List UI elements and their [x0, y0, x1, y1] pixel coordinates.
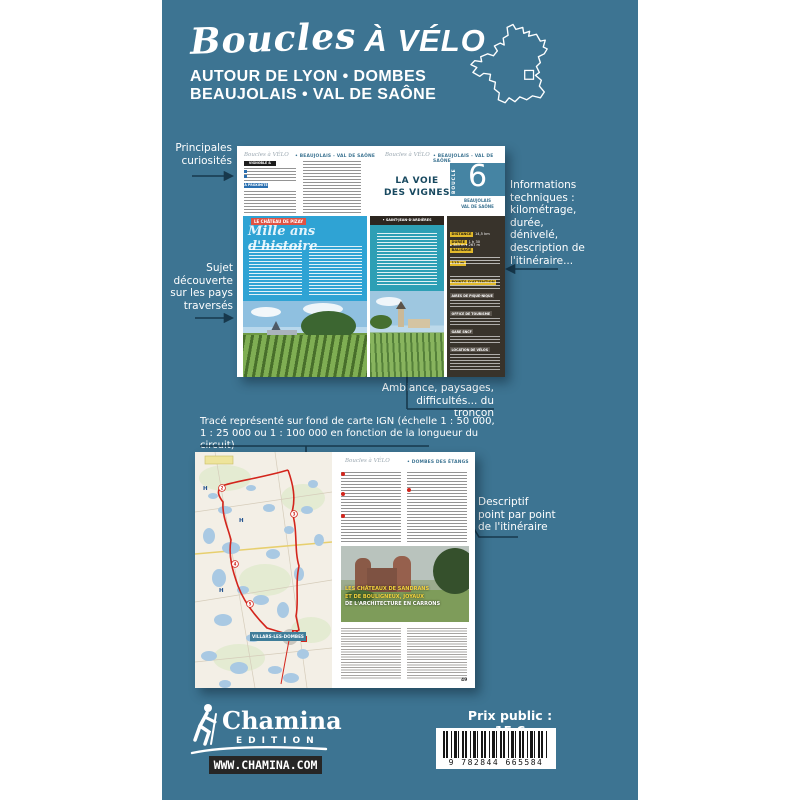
route-title: LA VOIE DES VIGNES: [377, 176, 457, 199]
step-marker: [341, 514, 345, 518]
barcode-bars: [443, 731, 549, 758]
step-marker: [341, 492, 345, 496]
boucle-number: 6: [468, 159, 487, 194]
annotation-sujet-decouverte: Sujet découverte sur les pays traversés: [162, 262, 233, 312]
info-text-texture: [450, 276, 500, 290]
brand-chamina: Chamina: [222, 706, 342, 735]
denivele-values: ▴ 383 m ▾ 267 m: [450, 243, 480, 247]
caption-line-1: LES CHÂTEAUX DE SANDRANS: [345, 586, 440, 594]
spread2-header-region: • DOMBES DES ÉTANGS: [407, 460, 469, 465]
section-bar-saint-jean: • SAINT-JEAN-D'ARDIÈRES: [370, 216, 444, 225]
sidebar-box-patrimoine: VIGNOBLE & PATRIMOINE: [244, 161, 276, 166]
boucle-label: BOUCLE: [452, 165, 457, 194]
spread1-header-script-left: Boucles à VÉLO: [244, 152, 289, 158]
info-text-texture: [450, 354, 500, 370]
svg-text:H: H: [203, 486, 208, 492]
boucle-region: BEAUJOLAIS VAL DE SAÔNE: [450, 196, 505, 211]
region-square-marker: [525, 70, 534, 79]
caption-line-3: DE L'ARCHITECTURE EN CARRONS: [345, 601, 440, 609]
caption-line-2: ET DE BOULIGNEUX, JOYAUX: [345, 594, 440, 602]
boucle-number-box: BOUCLE 6: [450, 163, 505, 196]
website-banner: WWW.CHAMINA.COM: [209, 756, 322, 774]
intro-text-texture: [303, 161, 361, 213]
page-title: Boucles À VÉLO: [190, 18, 486, 60]
step-marker: [341, 472, 345, 476]
village-houses: [408, 319, 430, 328]
itinerary-text-texture: [407, 472, 467, 542]
cloud: [251, 307, 281, 317]
vineyard-rows: [370, 333, 444, 377]
article-text-texture: [407, 628, 467, 680]
info-bar-1: OFFICE DE TOURISME: [450, 311, 492, 316]
spread1-header-script-right: Boucles à VÉLO: [385, 152, 430, 158]
sidebar-list-texture: [244, 191, 296, 213]
info-text-texture: [450, 318, 500, 326]
info-text-texture: [450, 257, 500, 266]
poi-icon: [244, 170, 247, 173]
logo-swoosh: [190, 744, 330, 756]
barcode: 9 782844 665584: [436, 728, 556, 769]
article-text-texture: [309, 246, 362, 296]
article-text-texture: [249, 246, 302, 296]
title-script: Boucles: [189, 15, 357, 63]
cover-background: Boucles À VÉLO AUTOUR DE LYON • DOMBES B…: [162, 0, 638, 800]
france-map-icon: [468, 20, 556, 116]
annotation-informations-techniques: Informations techniques : kilométrage, d…: [510, 179, 605, 267]
svg-text:4: 4: [234, 561, 237, 566]
svg-text:2: 2: [221, 485, 224, 490]
annotation-ambiance-paysages: Ambiance, paysages, difficultés... du tr…: [374, 382, 494, 420]
svg-text:5: 5: [249, 601, 252, 606]
article-text-texture: [341, 628, 401, 680]
ign-map: 2 3 4 5 D P HHH: [195, 452, 332, 688]
poi-icon: [244, 175, 247, 178]
tree-mass: [370, 315, 392, 329]
church-roof: [396, 301, 406, 309]
photo-caption: LES CHÂTEAUX DE SANDRANS ET DE BOULIGNEU…: [345, 586, 440, 609]
svg-text:H: H: [239, 518, 244, 524]
info-bar-0: AIRES DE PIQUE-NIQUE: [450, 293, 494, 298]
spread1-header-region-left: • BEAUJOLAIS - VAL DE SAÔNE: [295, 154, 375, 159]
photo-chateau-vineyard: [243, 301, 367, 377]
annotation-principales-curiosites: Principales curiosités: [162, 142, 232, 167]
info-bar-2: GARE SNCF: [450, 329, 473, 334]
spread2-header-script: Boucles à VÉLO: [345, 458, 390, 464]
svg-text:H: H: [219, 588, 224, 594]
photo-village: [370, 291, 444, 377]
page-number: 49: [461, 678, 467, 683]
barcode-digits: 9 782844 665584: [436, 758, 556, 767]
step-marker: [407, 488, 411, 492]
sidebar-list-texture: [244, 168, 296, 181]
annotation-descriptif: Descriptif point par point de l'itinérai…: [478, 496, 570, 534]
itinerary-text-texture: [341, 472, 401, 542]
cover-subtitle: AUTOUR DE LYON • DOMBES BEAUJOLAIS • VAL…: [190, 68, 436, 104]
spread-map-page: 2 3 4 5 D P HHH VILLARS-LES-DOMBES Boucl…: [195, 452, 475, 688]
info-bar-3: LOCATION DE VÉLOS: [450, 347, 490, 352]
info-column: DISTANCE14,5 km DURÉE1 h 30 BALISAGE ▴ 3…: [447, 216, 505, 377]
annotation-trace-ign: Tracé représenté sur fond de carte IGN (…: [200, 416, 500, 452]
tronçon-text-texture: [377, 233, 437, 285]
svg-text:3: 3: [293, 511, 296, 516]
map-legend-chip: [205, 456, 233, 464]
sidebar-box-proximite: À PROXIMITÉ: [244, 183, 268, 188]
tronçon-text-panel: [370, 225, 444, 291]
photo-castle: LES CHÂTEAUX DE SANDRANS ET DE BOULIGNEU…: [341, 546, 469, 622]
book-back-cover: Boucles À VÉLO AUTOUR DE LYON • DOMBES B…: [0, 0, 800, 800]
spread-route-page: Boucles à VÉLO • BEAUJOLAIS - VAL DE SAÔ…: [237, 146, 505, 377]
info-text-texture: [450, 336, 500, 344]
church-tower: [398, 307, 404, 327]
article-panel: LE CHÂTEAU DE PIZAY Mille ans d'histoire: [243, 216, 367, 301]
map-town-label: VILLARS-LES-DOMBES: [250, 632, 306, 641]
website-url: WWW.CHAMINA.COM: [214, 758, 318, 772]
info-text-texture: [450, 300, 500, 308]
vineyard-rows: [243, 335, 367, 377]
